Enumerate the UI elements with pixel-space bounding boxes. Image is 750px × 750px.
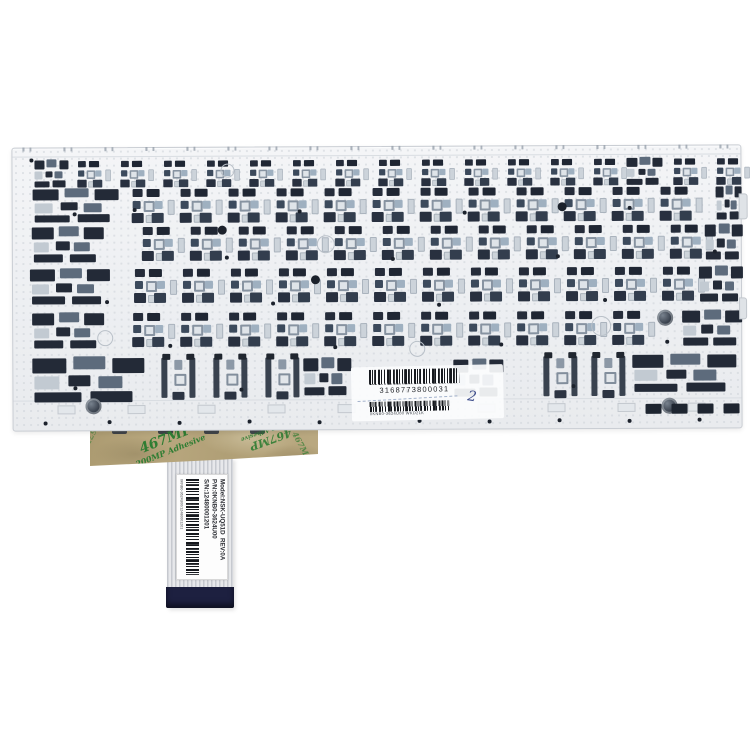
mechanism-part [421,312,431,320]
mechanism-part [213,239,221,247]
screw-hole [558,418,562,422]
key-mechanism [237,225,271,261]
mechanism-part [704,225,716,237]
label-sn-line: S/N:12480001201 [201,479,209,570]
mechanism-part [279,280,287,288]
mechanism-part [638,168,645,175]
mechanism-part [148,169,154,181]
mechanism-part [469,312,479,320]
mechanism-part [483,187,496,195]
mechanism-part [384,324,395,335]
screw-hole [271,301,275,305]
mechanism-part [135,269,145,277]
mechanism-part [360,323,367,338]
mechanism-part [164,161,172,167]
mechanism-part [183,281,191,289]
mechanism-part [179,179,188,187]
key-mechanism [179,312,213,348]
mechanism-part [394,178,403,186]
mechanism-part [259,170,268,179]
mechanism-part [568,168,574,174]
mechanism-part [493,225,506,233]
mechanism-part [34,215,70,223]
mechanism-part [422,160,430,166]
screw-hole [298,209,302,213]
mechanism-part [490,291,502,301]
mechanism-part [575,225,585,233]
mechanism-part [147,313,160,321]
mechanism-part [488,211,500,221]
mechanism-part [716,212,727,220]
mechanism-part [671,353,701,364]
mechanism-part [35,172,43,180]
mechanism-part [152,213,164,223]
mechanism-part [421,178,430,186]
mechanism-part [674,279,685,290]
screw-hole [108,420,112,424]
mechanism-part [229,325,237,333]
edge-notch [186,147,195,151]
mechanism-part [623,225,633,233]
mechanism-part [491,199,499,207]
screw-hole [391,257,395,261]
mechanism-part [277,188,287,196]
ribbon-label: Model:NSK-UQ51D REV:0A P/N:0KNB0-3624U00… [176,474,228,580]
mechanism-part [465,159,473,165]
mechanism-part [95,170,101,176]
mechanism-part [482,279,493,290]
label-model-line: Model:NSK-UQ51D REV:0A [217,479,225,570]
mechanism-part [142,251,154,261]
mechanism-part [627,187,640,195]
mechanism-part [744,167,750,179]
mechanism-part [507,178,516,186]
mechanism-part [335,179,344,187]
key-mechanism [661,266,695,302]
mechanism-part [265,179,274,187]
mechanism-part [301,226,314,234]
edge-notch [637,145,646,149]
mechanism-part [690,249,702,259]
key-mechanism [323,187,357,223]
mechanism-part [642,249,654,259]
mechanism-part [338,358,352,371]
serial-label-area: 3168773800031 2 0KNB0-3624U00 WKD21K [351,364,504,421]
plate-side-tab [739,297,747,319]
mechanism-part [566,178,575,186]
mechanism-part [182,293,194,303]
mechanism-part [661,187,671,195]
mechanism-part [519,159,529,165]
mechanism-part [705,239,713,249]
mechanism-part [78,214,110,222]
mechanism-part [69,375,91,386]
mechanism-part [173,170,182,179]
mechanism-part [725,281,735,291]
label-barcode [186,479,199,575]
product-photo: 3168773800031 2 0KNB0-3624U00 WKD21K 467… [0,0,750,750]
mechanism-part [567,267,577,275]
mechanism-part [261,160,271,166]
mechanism-part [32,284,49,294]
mechanism-part [32,228,54,240]
mechanism-part [180,337,192,347]
mechanism-part [77,284,94,294]
mechanism-part [605,159,615,165]
key-mechanism [421,267,455,303]
mechanism-part [422,169,428,175]
mechanism-part [480,324,491,335]
mechanism-part [543,356,549,396]
mechanism-part [216,324,223,339]
mechanism-part [206,179,215,187]
screw-hole [73,212,77,216]
mechanism-part [231,269,241,277]
mechanism-part [261,238,269,246]
mechanism-part [674,158,682,164]
embossed-circle [409,341,425,357]
mechanism-part [229,189,239,197]
mechanism-part [435,188,448,196]
mechanism-part [293,268,306,276]
mechanism-part [58,226,78,236]
mechanism-part [388,169,397,178]
mechanism-part [32,358,66,373]
mechanism-part [32,314,54,326]
mechanism-part [591,356,597,396]
edge-notch [555,145,564,149]
mechanism-part [258,250,270,260]
mechanism-part [632,211,644,221]
mechanism-part [374,292,386,302]
mechanism-part [251,201,259,209]
key-mechanism [659,186,693,222]
key-mechanism [419,187,453,223]
mechanism-part [613,199,621,207]
mechanism-part [183,269,193,277]
mechanism-part [174,360,182,370]
mechanism-part [449,168,455,180]
edge-notch [350,146,359,150]
mechanism-part [353,169,359,175]
key-mechanism-cluster [697,263,745,303]
metal-standoff [657,310,673,326]
mechanism-part [560,168,569,177]
mechanism-part [157,281,165,289]
mechanism-part [663,279,671,287]
mechanism-part [327,268,337,276]
mechanism-part [146,281,157,292]
mechanism-part [195,313,208,321]
screw-hole [318,420,322,424]
edge-notch [514,145,523,149]
mechanism-part [479,226,489,234]
screw-hole [713,250,717,254]
mechanism-part [394,238,405,249]
mechanism-part [431,226,441,234]
mechanism-part [395,200,403,208]
mechanism-part [683,325,696,335]
key-mechanism [291,159,318,187]
mechanism-part [437,178,446,186]
mechanism-part [354,250,366,260]
mechanism-part [565,187,575,195]
mechanism-part [594,249,606,259]
mechanism-part [226,360,234,370]
mechanism-part [490,237,501,248]
mechanism-part [135,281,143,289]
mechanism-part [277,312,287,320]
mechanism-part [298,292,310,302]
edge-notch [268,146,277,150]
key-mechanism-cluster [32,158,70,188]
mechanism-part [611,168,617,174]
mechanism-part [565,323,573,331]
mechanism-part [682,237,693,248]
embossed-circle [97,330,113,346]
mechanism-part [234,169,240,181]
screw-hole [437,303,441,307]
mechanism-part [609,177,618,185]
mechanism-part [121,161,129,167]
mechanism-part [685,225,698,233]
mechanism-part [675,187,688,195]
mechanism-part [69,254,96,263]
mechanism-part [162,251,174,261]
mechanism-part [309,238,317,246]
mechanism-part [432,324,443,335]
mechanism-part [245,269,258,277]
mechanism-part [645,178,659,185]
mechanism-part [589,225,602,233]
mechanism-part [265,357,271,397]
metal-standoff [85,398,101,414]
mechanism-part [34,255,64,263]
mechanism-part [734,168,740,174]
mechanism-part [724,199,729,207]
barcode-number: 3168773800031 [361,384,467,395]
mechanism-part [673,177,682,185]
mechanism-part [161,358,167,398]
edge-slot [672,404,688,414]
mechanism-part [586,237,597,248]
mechanism-part [517,168,526,177]
mechanism-part [576,323,587,334]
mechanism-part [155,201,163,209]
mechanism-part [200,337,212,347]
mechanism-part [239,239,247,247]
mechanism-part [717,325,730,335]
mechanism-part [253,226,266,234]
mechanism-part [264,199,271,214]
mechanism-part [719,223,730,233]
mechanism-part [383,226,393,234]
screw-hole [29,158,33,162]
mechanism-part [336,160,344,166]
mechanism-part [634,237,645,248]
key-mechanism [419,311,453,347]
mechanism-part [613,311,623,319]
key-mechanism [381,225,415,261]
edge-notch [145,147,154,151]
mechanism-part [203,325,211,333]
edge-slot [646,404,662,414]
key-mechanism-tall [159,354,197,402]
mechanism-part [332,374,342,384]
mechanism-part [207,170,213,176]
mechanism-part [726,168,735,177]
mechanism-part [674,168,680,174]
mechanism-part [687,383,726,392]
mechanism-part [717,238,725,247]
mechanism-part [296,212,308,222]
key-mechanism [477,224,511,260]
edge-tab [58,405,76,414]
mechanism-part [491,323,499,331]
mechanism-part [650,278,657,293]
mechanism-part [241,358,247,398]
key-mechanism [131,312,165,348]
mechanism-part [648,169,656,176]
mechanism-part [287,226,297,234]
mechanism-part [341,268,354,276]
mechanism-part [56,327,70,336]
mechanism-part [34,328,50,338]
key-mechanism [549,158,576,186]
mechanism-part [722,293,738,302]
mechanism-part [278,292,290,302]
mechanism-part [579,311,592,319]
mechanism-part [549,237,557,245]
mechanism-part [308,179,317,187]
mechanism-part [325,324,333,332]
mechanism-part [600,198,607,213]
key-mechanism-grid [12,145,740,148]
mechanism-part [277,169,283,181]
key-mechanism-cluster [27,354,149,405]
mechanism-part [372,336,384,346]
screw-hole [628,206,632,210]
mechanism-part [576,199,587,210]
mechanism-part [396,169,402,175]
mechanism-part [321,357,335,368]
mechanism-part [683,338,708,346]
mechanism-part [335,238,343,246]
mechanism-part [87,170,96,179]
mechanism-part [443,200,451,208]
mechanism-part [304,160,314,166]
mechanism-part [701,167,707,179]
mechanism-part [514,236,521,251]
mechanism-part [200,213,212,223]
mechanism-part [325,312,335,320]
mechanism-part [450,250,462,260]
mechanism-part [242,281,253,292]
mechanism-part [89,161,99,167]
mechanism-part [662,291,674,301]
mechanism-part [378,178,387,186]
mechanism-part [192,325,203,336]
mechanism-part [727,239,735,249]
mechanism-part [320,169,326,181]
mechanism-part [274,237,281,252]
key-mechanism [672,158,699,186]
mechanism-part [556,372,568,384]
mechanism-part [422,292,434,302]
mechanism-part [194,281,205,292]
key-mechanism [373,267,407,303]
mechanism-part [482,169,488,175]
mechanism-part [349,226,362,234]
mechanism-part [229,201,237,209]
edge-tab [128,405,146,414]
mechanism-part [614,291,626,301]
key-mechanism [275,311,309,347]
mechanism-part [725,251,739,260]
key-mechanism [420,159,447,187]
mechanism-part [32,189,58,201]
mechanism-part [714,337,736,346]
mechanism-part [716,200,722,210]
mechanism-part [203,201,211,209]
mechanism-part [498,249,510,259]
mechanism-part [693,237,701,245]
mechanism-part [728,158,738,164]
key-mechanism [227,312,261,348]
mechanism-part [523,178,532,186]
key-mechanism [277,267,311,303]
mechanism-part [527,225,537,233]
mechanism-part [476,159,486,165]
mechanism-part [243,313,256,321]
key-mechanism [285,225,319,261]
key-mechanism [525,224,559,260]
mechanism-part [243,189,256,197]
mechanism-part [344,212,356,222]
mechanism-part [517,199,525,207]
mechanism-part [604,358,612,368]
mechanism-part [181,325,189,333]
mechanism-part [587,199,595,207]
mechanism-part [286,250,298,260]
key-mechanism [323,311,357,347]
mechanism-part [604,372,616,384]
mechanism-part [731,267,744,279]
mechanism-part [556,358,564,368]
key-mechanism [467,186,501,222]
key-mechanism [371,311,405,347]
key-mechanism-cluster [624,156,664,186]
connector-stiffener [166,587,234,608]
key-mechanism-tall [541,352,579,400]
mechanism-part [147,189,160,197]
mechanism-part [74,328,90,338]
mechanism-part [397,280,405,288]
key-mechanism-tall [589,352,627,400]
mechanism-part [45,171,52,178]
mechanism-part [538,291,550,301]
mechanism-part [528,323,539,334]
mechanism-part [465,169,471,175]
key-mechanism [429,225,463,261]
mechanism-part [612,211,624,221]
mechanism-part [468,212,480,222]
mechanism-part [554,390,566,398]
key-mechanism-cluster [703,221,745,261]
edge-notch [678,145,687,149]
mechanism-part [637,225,650,233]
mechanism-part [431,238,439,246]
